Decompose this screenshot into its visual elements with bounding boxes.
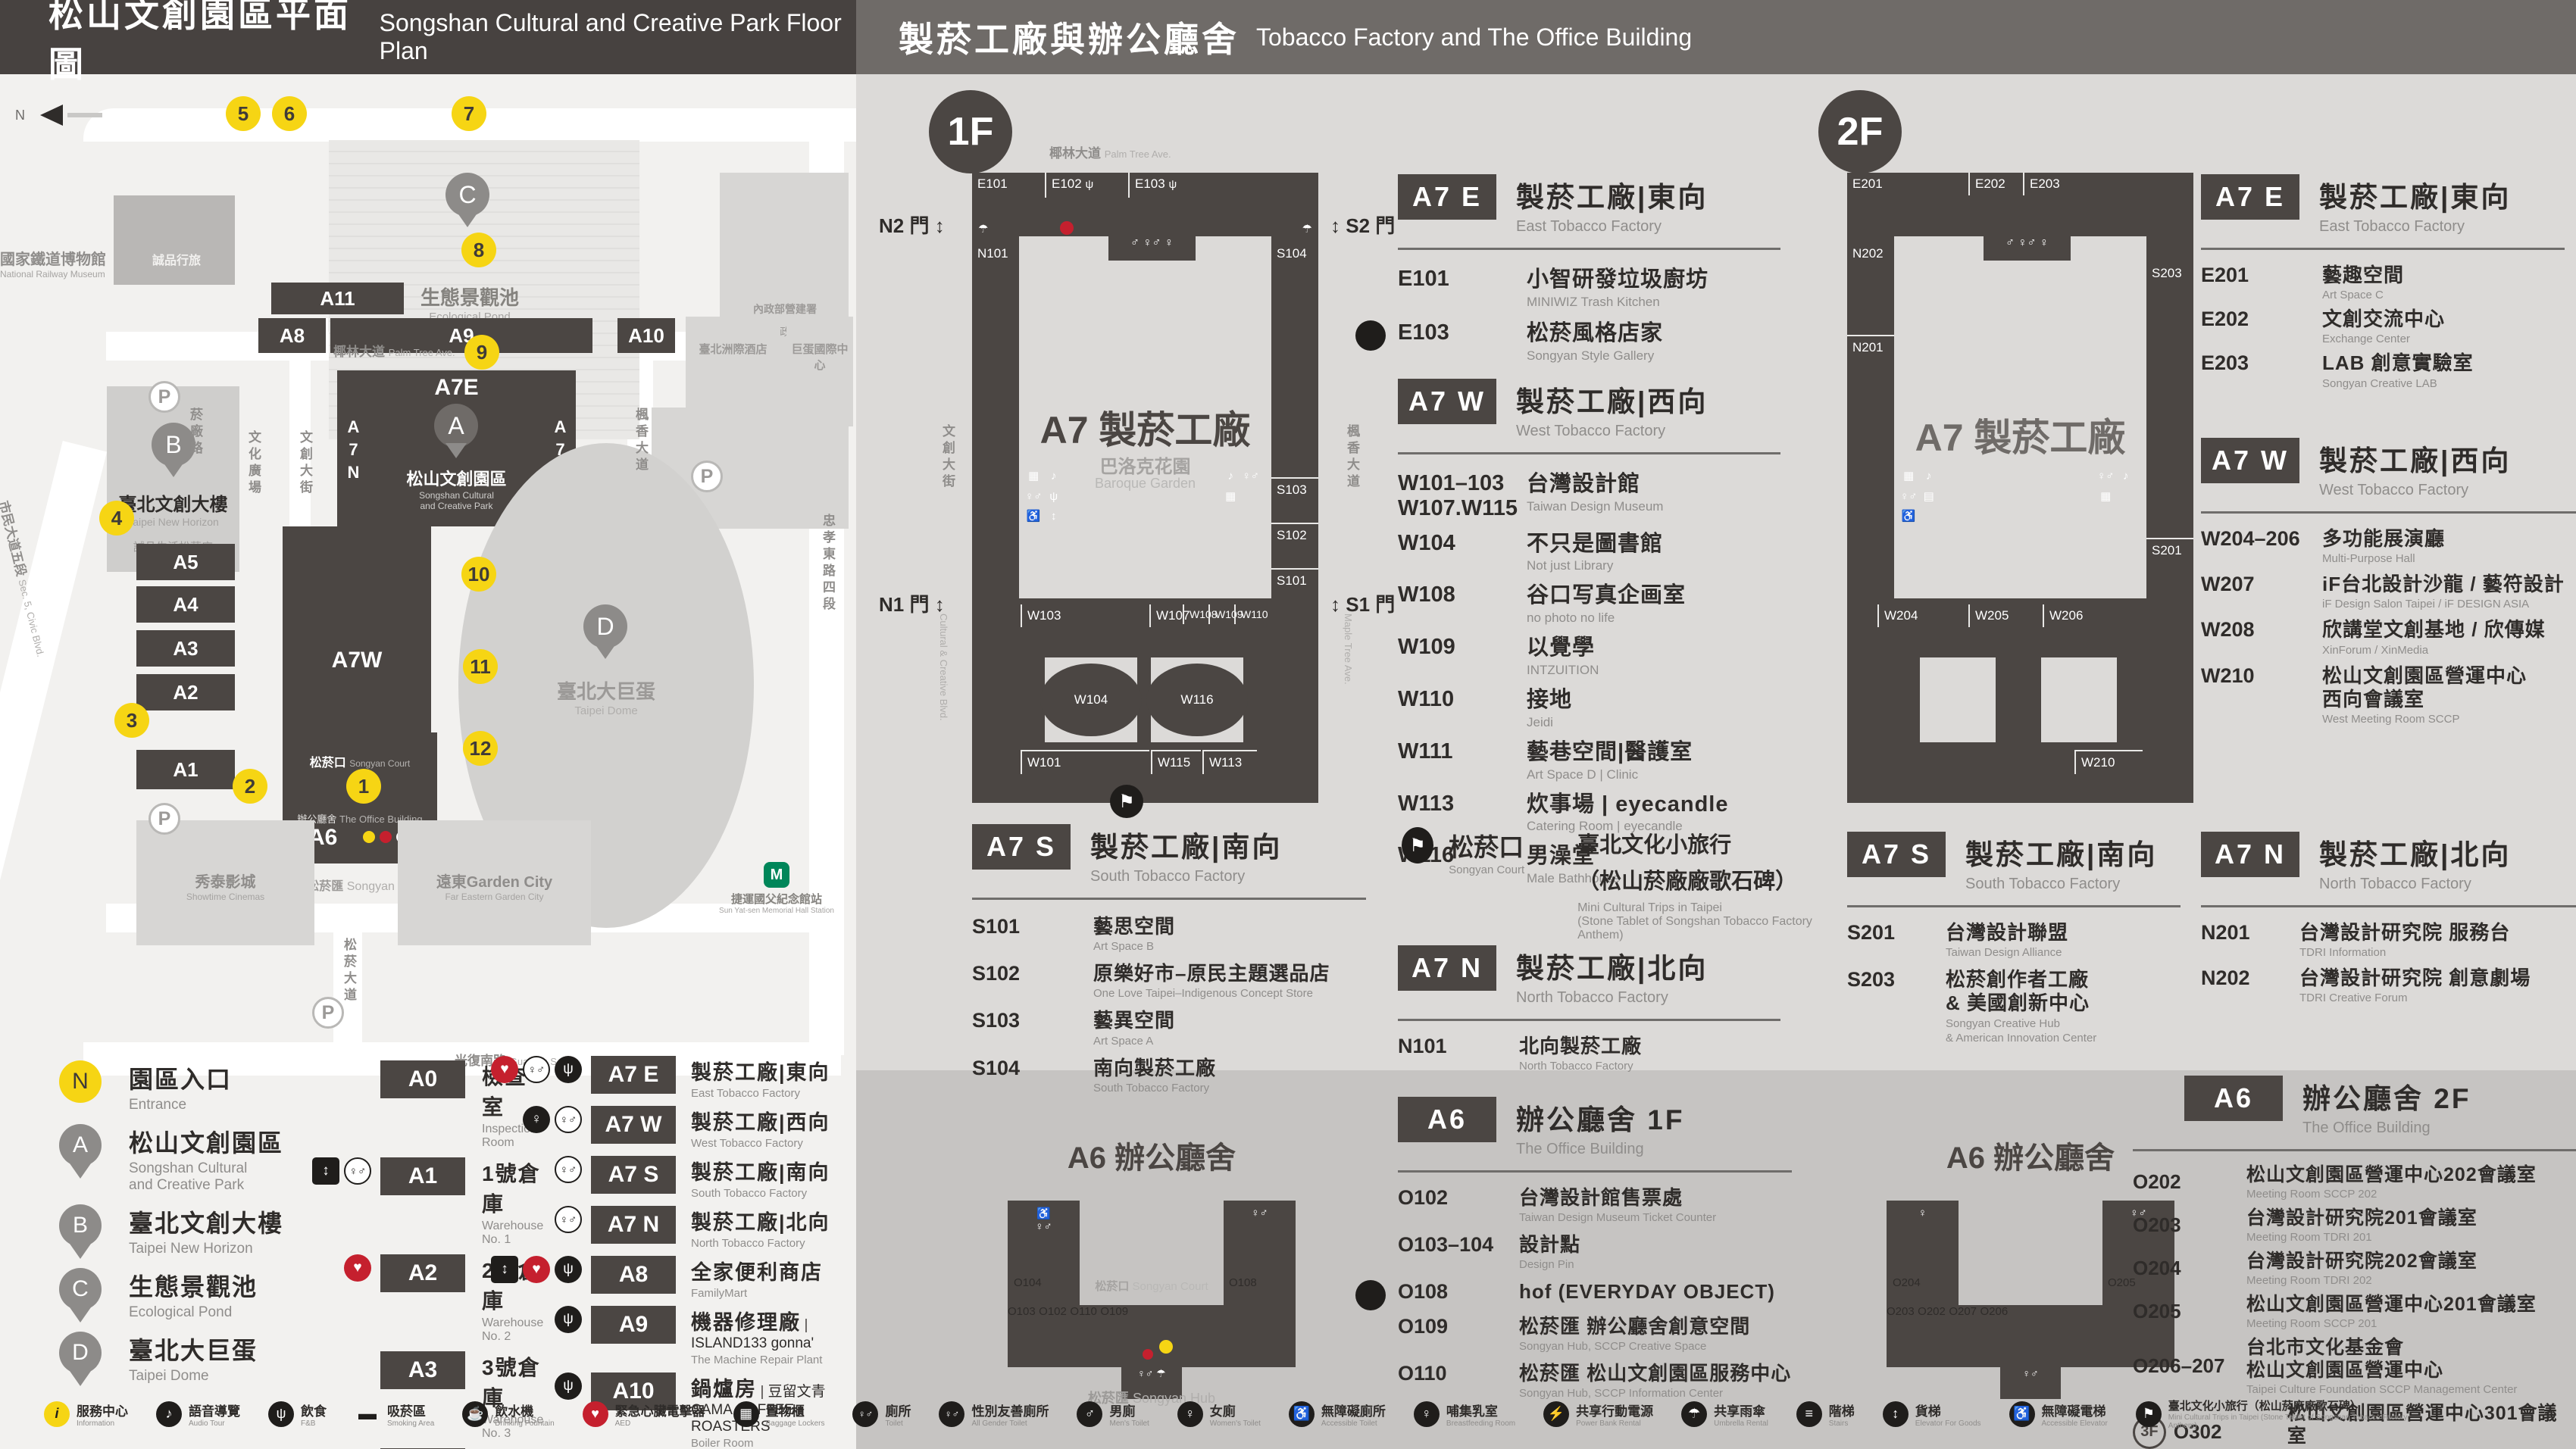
facility-legend-item: 臺北文化小旅行（松山菸廠廠歌石碑）Mini Cultural Trips in … — [2136, 1397, 2418, 1430]
plan-room: W210 — [2074, 750, 2143, 774]
plan-room: N201 — [1847, 335, 1894, 359]
garden-label-zh: 巴洛克花園 — [972, 451, 1318, 478]
dining-icon — [555, 1306, 582, 1333]
water-icon — [462, 1401, 488, 1427]
legend-pins: N 園區入口 Entrance A 松山文創園區 Songshan Cultur… — [59, 1060, 309, 1395]
accessible-icon — [1289, 1401, 1315, 1427]
a6f1-plan: ♿♀♂ ♀♂ 松菸口 Songyan Court O104 O108 O103 … — [1008, 1170, 1296, 1371]
section-badge: A6 — [2184, 1076, 2283, 1121]
gate-n1: N1 門 ↕ — [879, 589, 945, 617]
section-a7w-2f: A7 W 製菸工廠|西向West Tobacco Factory W204–20… — [2201, 438, 2576, 733]
gate-s1: ↕ S1 門 — [1330, 589, 1395, 617]
umbrella-icon — [1681, 1401, 1707, 1427]
plan-room-oval: W116 — [1146, 664, 1248, 736]
room-row: N201 台灣設計研究院 服務台TDRI Information — [2201, 921, 2576, 959]
plan-center-label: A7 製菸工廠 — [1847, 408, 2193, 462]
legend-pin-badge: D — [59, 1332, 102, 1374]
section-badge: A7 E — [2201, 174, 2299, 220]
plan1-left-street: 文創大街 — [938, 424, 957, 491]
plan-room: O102 — [1039, 1305, 1067, 1318]
plan-room: W101 — [1021, 750, 1149, 774]
plan-room: W103 — [1021, 604, 1066, 627]
legend-pin-badge: A — [59, 1124, 102, 1166]
room-row: E202 文創交流中心Exchange Center — [2201, 308, 2565, 345]
nursing-icon — [1414, 1401, 1440, 1427]
facility-legend-item: 共享雨傘Umbrella Rental — [1681, 1397, 1768, 1430]
plan-room-oval: W104 — [1040, 664, 1142, 736]
entrance-9: 9 — [464, 335, 499, 370]
room-row: O109 松菸匯 辦公廳舍創意空間Songyan Hub, SCCP Creat… — [1398, 1315, 1792, 1353]
pin-A: A — [434, 404, 478, 448]
plan-room: E103 ψ — [1128, 173, 1182, 198]
facility-legend-item: 吸菸區Smoking Area — [355, 1397, 434, 1430]
cultural-plaza-label: 文化廣場 — [244, 430, 263, 497]
entrance-8: 8 — [461, 233, 496, 267]
section-badge: A6 — [1398, 1097, 1496, 1142]
right-title-zh: 製菸工廠與辦公廳舍 — [899, 12, 1240, 62]
room-row: E201 藝趣空間Art Space C — [2201, 264, 2565, 301]
building-code-badge: A7 E — [591, 1056, 676, 1094]
room-row: W210 松山文創園區營運中心西向會議室West Meeting Room SC… — [2201, 664, 2576, 726]
room-row: E101 小智研發垃圾廚坊MINIWIZ Trash Kitchen — [1398, 267, 1780, 310]
room-row: O204 台灣設計研究院202會議室Meeting Room TDRI 202 — [2133, 1250, 2576, 1287]
floor2-plan: E201 E202 E203 ♂ ♀♂ ♀ N202 N201 S203 S20… — [1847, 173, 2193, 803]
room-row: S103 藝異空間Art Space A — [972, 1009, 1366, 1047]
parking-icon: P — [312, 997, 344, 1029]
section-badge: A7 N — [2201, 832, 2299, 877]
compass-arrow-icon — [30, 105, 63, 126]
section-badge: A7 W — [2201, 438, 2299, 483]
plan-room: O110 — [1070, 1305, 1097, 1318]
plan-room: N202 — [1847, 242, 1889, 265]
plan1-palm-ave: 椰林大道 Palm Tree Ave. — [1049, 142, 1171, 161]
dome-center-label: 巨蛋國際中心 — [786, 341, 853, 373]
plan-room: S201 — [2146, 538, 2193, 562]
plan1-left-street-en: Cultural & Creative Blvd. — [938, 614, 949, 721]
section-a7e-1f: A7 E 製菸工廠|東向East Tobacco Factory E101 小智… — [1398, 174, 1780, 374]
building-A3: A3 — [136, 630, 235, 667]
legend-building-row: A7 E 製菸工廠|東向 East Tobacco Factory — [485, 1056, 849, 1100]
plan-room: E101 — [972, 173, 1013, 195]
section-badge: A7 W — [1398, 379, 1496, 424]
info-dot — [363, 831, 375, 843]
building-A2: A2 — [136, 674, 235, 710]
entrance-5: 5 — [226, 96, 261, 131]
dining-icon — [1355, 320, 1386, 351]
plan-room: E203 — [2023, 173, 2065, 195]
facility-legend-item: 置物櫃Baggage Lockers — [733, 1397, 825, 1430]
facility-legend-item: 服務中心Information — [44, 1397, 128, 1430]
park-map: N 國家鐵道博物館 National Railway Museum C 生態景觀… — [0, 74, 856, 1053]
room-row: W208 欣講堂文創基地 / 欣傳媒XinForum / XinMedia — [2201, 618, 2576, 656]
plan-room: S101 — [1271, 568, 1318, 592]
room-row: S104 南向製菸工廠South Tobacco Factory — [972, 1057, 1366, 1095]
plan-room: W205 — [1968, 604, 2014, 627]
legend-building-row: A7 S 製菸工廠|南向 South Tobacco Factory — [485, 1156, 849, 1200]
section-a6-2f: A6 辦公廳舍 2FThe Office Building O202 松山文創園… — [2133, 1076, 2576, 1449]
entrance-11: 11 — [463, 649, 498, 684]
mrt-station: M 捷運國父紀念館站 Sun Yat-sen Memorial Hall Sta… — [705, 862, 849, 915]
gate-s2: ↕ S2 門 — [1330, 211, 1395, 239]
garden-label-en: Baroque Garden — [972, 476, 1318, 492]
legend-building-row: A8 全家便利商店 FamilyMart — [485, 1256, 849, 1300]
facility-legend-item: 哺集乳室Breastfeeding Room — [1414, 1397, 1515, 1430]
room-row: E203 LAB 創意實驗室Songyan Creative LAB — [2201, 351, 2565, 389]
plan1-right-street-en: Maple Tree Ave. — [1343, 614, 1354, 685]
room-row: O103–104 設計點Design Pin — [1398, 1233, 1792, 1271]
plan-room: O202 — [1918, 1305, 1946, 1318]
maple-ave-label: 楓香大道 — [631, 408, 650, 474]
section-badge: A7 S — [1847, 832, 1946, 877]
section-badge: A7 N — [1398, 945, 1496, 991]
restroom-icon — [344, 1157, 371, 1185]
plan2-restroom-tab: ♂ ♀♂ ♀ — [1984, 236, 2071, 261]
toilet-icon — [852, 1401, 878, 1427]
plan-room: E201 — [1847, 173, 1888, 195]
plan-room: O108 — [1229, 1276, 1257, 1289]
aed-icon — [523, 1256, 550, 1283]
room-row: S101 藝思空間Art Space B — [972, 915, 1366, 953]
intercontinental-label: 臺北洲際酒店 — [686, 341, 780, 357]
legend-building-row: A7 N 製菸工廠|北向 North Tobacco Factory — [485, 1206, 849, 1250]
room-row: O202 松山文創園區營運中心202會議室Meeting Room SCCP 2… — [2133, 1163, 2576, 1201]
building-code-badge: A1 — [380, 1157, 465, 1195]
legend-pin-row: D 臺北大巨蛋 Taipei Dome — [59, 1332, 309, 1385]
building-A11: A11 — [271, 283, 404, 314]
section-badge: A7 E — [1398, 174, 1496, 220]
cargo-icon — [1883, 1401, 1909, 1427]
info-dot — [1159, 1340, 1173, 1354]
entrance-3: 3 — [114, 703, 149, 738]
facility-legend-item: 緊急心臟電擊器AED — [583, 1397, 705, 1430]
building-code-badge: A2 — [380, 1254, 465, 1292]
compass: N — [15, 105, 102, 126]
facility-legend-item: 無障礙廁所Accessible Toilet — [1289, 1397, 1386, 1430]
room-row: N202 台灣設計研究院 創意劇場TDRI Creative Forum — [2201, 967, 2576, 1004]
facility-legend-item: 性別友善廁所All Gender Toilet — [939, 1397, 1049, 1430]
plan-room: E202 — [1968, 173, 2011, 195]
building-code-badge: A7 N — [591, 1206, 676, 1244]
stairs-icon — [1796, 1401, 1822, 1427]
room-row: E103 松菸風格店家Songyan Style Gallery — [1398, 320, 1780, 364]
plan-room: O203 — [1887, 1305, 1915, 1318]
compass-label: N — [15, 108, 25, 123]
restroom-icon — [523, 1056, 550, 1083]
eslite-hotel-label: 誠品行旅 — [120, 250, 233, 268]
plan-room: O104 — [1014, 1276, 1042, 1289]
entrance-1: 1 — [346, 769, 381, 804]
plan-room: O205 — [2108, 1276, 2136, 1289]
plan1-restroom-tab: ♂ ♀♂ ♀ — [1108, 236, 1196, 261]
plan-room: W204 — [1877, 604, 1923, 627]
facility-legend-item: 女廁Women's Toilet — [1177, 1397, 1261, 1430]
room-row: S201 台灣設計聯盟Taiwan Design Alliance — [1847, 921, 2181, 960]
room-row: W109 以覺學INTZUITION — [1398, 635, 1780, 678]
parking-icon: P — [148, 381, 180, 413]
facility-legend-item: 語音導覽Audio Tour — [156, 1397, 240, 1430]
section-a7e-2f: A7 E 製菸工廠|東向East Tobacco Factory E201 藝趣… — [2201, 174, 2565, 396]
room-row: W108 谷口写真企画室no photo no life — [1398, 582, 1780, 626]
intercontinental-block — [686, 317, 780, 426]
room-row: W104 不只是圖書館Not just Library — [1398, 531, 1780, 574]
legend-pin-row: N 園區入口 Entrance — [59, 1060, 309, 1113]
facility-legend-item: 階梯Stairs — [1796, 1397, 1855, 1430]
legend-building-row: A9 機器修理廠 ISLAND133 gonna' The Machine Re… — [485, 1306, 849, 1366]
entrance-10: 10 — [461, 557, 496, 592]
facility-legend: 服務中心Information 語音導覽Audio Tour 飲食F&B 吸菸區… — [44, 1397, 2559, 1430]
facility-legend-item: 貨梯Elevator For Goods — [1883, 1397, 1981, 1430]
walking-person-icon: ⚑ — [1110, 785, 1143, 818]
aed-dot — [1060, 221, 1074, 235]
elevator-icon — [312, 1157, 339, 1185]
dome-label: 臺北大巨蛋 Taipei Dome — [515, 676, 697, 717]
facility-legend-item: 飲水機Drinking Fountain — [462, 1397, 554, 1430]
plan-room: O103 — [1008, 1305, 1036, 1318]
parking-icon: P — [148, 803, 180, 835]
section-a7w-1f: A7 W 製菸工廠|西向West Tobacco Factory W101–10… — [1398, 379, 1780, 895]
dining-icon — [268, 1401, 294, 1427]
showtime-label: 秀泰影城 Showtime Cinemas — [136, 870, 314, 902]
elevator-icon — [491, 1256, 518, 1283]
nursing-icon — [523, 1106, 550, 1133]
section-a7n-1f: A7 N 製菸工廠|北向North Tobacco Factory N101 北… — [1398, 945, 1780, 1073]
walking-person-icon: ⚑ — [1402, 827, 1433, 863]
cultural-blvd-label: 文創大街 — [295, 430, 314, 497]
plan-center-label: A7 製菸工廠 — [972, 400, 1318, 454]
section-songyan-court: ⚑ 松菸口 Songyan Court 臺北文化小旅行 （松山菸廠廠歌石碑） M… — [1402, 827, 1826, 942]
parking-icon: P — [691, 461, 723, 492]
entrance-12: 12 — [463, 731, 498, 766]
info-icon — [44, 1401, 70, 1427]
room-row: O203 台灣設計研究院201會議室Meeting Room TDRI 201 — [2133, 1207, 2576, 1244]
legend-pin-badge: C — [59, 1268, 102, 1310]
a6f2-plan: ♀ ♀♂ O204 O205 O203 O202 O207 O206 ♀♂ — [1887, 1170, 2174, 1371]
plan-room: N101 — [972, 242, 1014, 265]
restroom-icon — [555, 1206, 582, 1233]
section-a7s-2f: A7 S 製菸工廠|南向South Tobacco Factory S201 台… — [1847, 832, 2181, 1052]
room-row: O205 松山文創園區營運中心201會議室Meeting Room SCCP 2… — [2133, 1293, 2576, 1330]
gate-n2: N2 門 ↕ — [879, 211, 945, 239]
room-row: W110 接地Jeidi — [1398, 687, 1780, 730]
plan-room: O109 — [1100, 1305, 1128, 1318]
room-row: W207 iF台北設計沙龍 / 藝符設計iF Design Salon Taip… — [2201, 573, 2576, 611]
entrance-2: 2 — [233, 769, 267, 804]
allgender-icon — [939, 1401, 964, 1427]
aed-dot — [380, 831, 392, 843]
section-badge: A7 S — [972, 824, 1071, 870]
section-a7n-2f: A7 N 製菸工廠|北向North Tobacco Factory N201 台… — [2201, 832, 2576, 1012]
accesslift-icon — [2009, 1401, 2035, 1427]
room-row: W101–103 W107.W115 台灣設計館Taiwan Design Mu… — [1398, 471, 1780, 522]
building-A1: A1 — [136, 750, 235, 789]
right-title-en: Tobacco Factory and The Office Building — [1256, 23, 1692, 52]
songyan-ave-label: 松菸大道 — [339, 938, 358, 1004]
room-row: W111 藝巷空間|醫護室Art Space D | Clinic — [1398, 739, 1780, 782]
locker-icon — [733, 1401, 759, 1427]
plan-room: W206 — [2043, 604, 2088, 627]
plan-room: S102 — [1271, 523, 1318, 547]
floor1-badge: 1F — [929, 90, 1012, 173]
plan1-right-street: 楓香大道 — [1343, 424, 1361, 491]
cpa-label: 內政部營建署 — [717, 301, 853, 317]
women-icon — [1177, 1401, 1203, 1427]
facility-legend-item: 共享行動電源Power Bank Rental — [1543, 1397, 1653, 1430]
building-code-badge: A7 W — [591, 1106, 676, 1144]
legend-building-row: A7 W 製菸工廠|西向 West Tobacco Factory — [485, 1106, 849, 1150]
room-row: O110 松菸匯 松山文創園區服務中心Songyan Hub, SCCP Inf… — [1398, 1362, 1792, 1400]
facility-legend-item: 男廁Men's Toilet — [1077, 1397, 1149, 1430]
room-row: N101 北向製菸工廠North Tobacco Factory — [1398, 1035, 1780, 1073]
legend-pin-row: A 松山文創園區 Songshan Cultural and Creative … — [59, 1124, 309, 1194]
power-icon — [1543, 1401, 1569, 1427]
entrance-4: 4 — [99, 501, 134, 536]
facility-legend-item: 飲食F&B — [268, 1397, 327, 1430]
facility-icons: ▦♪♀♂▤♿ — [1900, 468, 1937, 526]
pin-C: C — [445, 173, 489, 217]
building-code-badge: A9 — [591, 1306, 676, 1344]
legend-pin-badge: N — [59, 1060, 102, 1103]
left-title-en: Songshan Cultural and Creative Park Floo… — [380, 9, 856, 65]
smoking-icon — [355, 1401, 380, 1427]
legend-pin-badge: B — [59, 1204, 102, 1247]
room-row: S203 松菸創作者工廠& 美國創新中心Songyan Creative Hub… — [1847, 968, 2181, 1044]
floor1-plan: E101 E102 ψ E103 ψ ☂ ☂ ♂ ♀♂ ♀ N101 W102 … — [972, 173, 1318, 803]
building-A4: A4 — [136, 586, 235, 623]
aed-icon — [344, 1254, 371, 1282]
plan-room: S203 — [2146, 262, 2187, 285]
legend-pin-row: C 生態景觀池 Ecological Pond — [59, 1268, 309, 1321]
facility-icons: ♀♂♪▦ — [2097, 468, 2134, 505]
left-header: 松山文創園區平面圖 Songshan Cultural and Creative… — [0, 0, 856, 74]
legend-pin-row: B 臺北文創大樓 Taipei New Horizon — [59, 1204, 309, 1257]
room-row: O108 hof (EVERYDAY OBJECT) — [1398, 1280, 1792, 1305]
palm-tree-ave-label: 椰林大道 Palm Tree Ave. — [333, 341, 455, 360]
men-icon — [1077, 1401, 1102, 1427]
plan-room: O206 — [1980, 1305, 2008, 1318]
plan-room: E102 ψ — [1045, 173, 1099, 198]
facility-legend-item: 廁所Toilet — [852, 1397, 911, 1430]
entrance-6: 6 — [272, 96, 307, 131]
building-code-badge: A0 — [380, 1060, 465, 1098]
plan-room: O204 — [1893, 1276, 1921, 1289]
aed-dot — [1143, 1349, 1153, 1360]
building-A8: A8 — [258, 318, 328, 353]
entrance-7: 7 — [452, 96, 486, 131]
building-A7W: A7W — [283, 526, 431, 732]
zhongxiao-rd-label: 忠孝東路四段 — [818, 514, 837, 614]
trips-icon — [2136, 1401, 2162, 1427]
metro-logo-icon: M — [764, 862, 789, 888]
legend-buildings-b: A7 E 製菸工廠|東向 East Tobacco Factory A7 W 製… — [485, 1056, 849, 1449]
audio-icon — [156, 1401, 182, 1427]
room-row: O102 台灣設計館售票處Taiwan Design Museum Ticket… — [1398, 1186, 1792, 1224]
building-code-badge: A3 — [380, 1351, 465, 1389]
plan-room: W113 — [1202, 750, 1257, 774]
plan-room: O207 — [1949, 1305, 1977, 1318]
plan-room: W110 — [1234, 604, 1274, 624]
pond-label: 生態景觀池 Ecological Pond — [379, 283, 561, 323]
yanchang-rd-label: 菸廠路 — [186, 408, 205, 457]
compass-tail — [67, 113, 102, 117]
poster: 松山文創園區平面圖 Songshan Cultural and Creative… — [0, 0, 2576, 1449]
building-code-badge: A7 S — [591, 1156, 676, 1194]
section-a7s-1f: A7 S 製菸工廠|南向South Tobacco Factory S101 藝… — [972, 824, 1366, 1104]
restroom-icon — [555, 1106, 582, 1133]
garden-city-label: 遠東Garden City Far Eastern Garden City — [398, 870, 591, 902]
aed-icon — [491, 1056, 518, 1083]
room-row: O206–207 台北市文化基金會松山文創園區營運中心Taipei Cultur… — [2133, 1336, 2576, 1396]
eslite-hotel-block — [114, 195, 235, 285]
facility-legend-item: 無障礙電梯Accessible Elevator — [2009, 1397, 2108, 1430]
room-row: S102 原樂好市–原民主題選品店One Love Taipei–Indigen… — [972, 962, 1366, 1000]
plan-room: W115 — [1151, 750, 1201, 774]
section-a6-1f: A6 辦公廳舍 1FThe Office Building O102 台灣設計館… — [1398, 1097, 1792, 1409]
building-A10: A10 — [617, 318, 675, 353]
dining-icon — [555, 1056, 582, 1083]
building-code-badge: A8 — [591, 1256, 676, 1294]
right-header: 製菸工廠與辦公廳舍 Tobacco Factory and The Office… — [856, 0, 2576, 74]
pin-D: D — [583, 604, 627, 648]
dining-icon — [555, 1256, 582, 1283]
building-A5: A5 — [136, 544, 235, 580]
aed-icon — [583, 1401, 608, 1427]
plan-room: S104 — [1271, 242, 1312, 265]
dining-icon — [555, 1372, 582, 1400]
restroom-icon — [555, 1156, 582, 1183]
room-row: W204–206 多功能展演廳Multi-Purpose Hall — [2201, 527, 2576, 565]
floor2-badge: 2F — [1818, 90, 1902, 173]
